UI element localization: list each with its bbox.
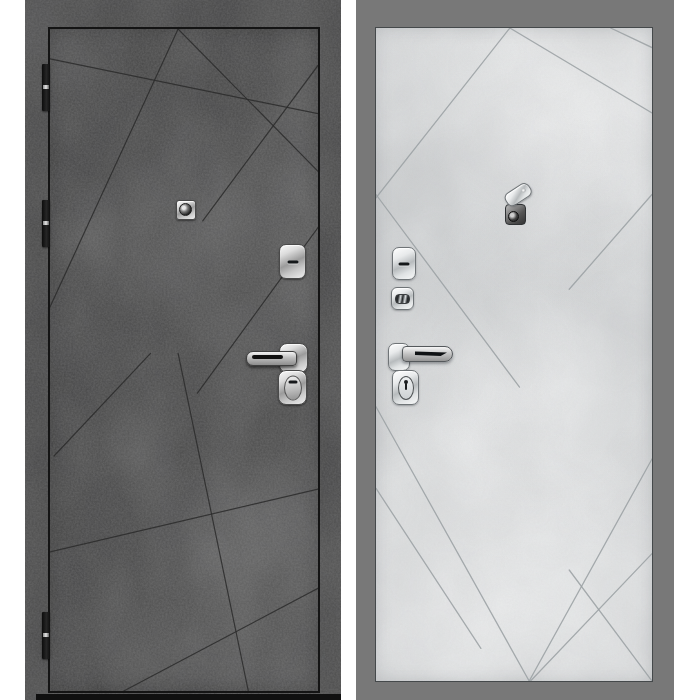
peephole-lens: [508, 211, 519, 222]
keyhole-slit: [405, 383, 407, 390]
panel-interior: [356, 0, 674, 700]
lever-grip-stripe: [415, 351, 447, 356]
door-handle-lever: [246, 351, 297, 366]
key-slot: [288, 380, 297, 383]
peephole-icon: [176, 200, 196, 220]
panel-exterior: [25, 0, 341, 700]
cylinder-oval: [398, 376, 414, 400]
upper-lock-cover: [392, 247, 416, 280]
cylinder-oval: [284, 375, 302, 400]
door-threshold: [36, 694, 341, 700]
thumbturn-knob: [391, 287, 414, 310]
upper-lock-cover: [279, 244, 306, 279]
door-handle-lever: [402, 346, 453, 362]
door-product-photo: [0, 0, 700, 700]
exterior-door-leaf: [48, 27, 320, 693]
lock-slot: [287, 260, 298, 263]
peephole-lens: [179, 203, 192, 216]
key-cylinder-cover: [278, 370, 307, 405]
peephole-icon: [505, 204, 526, 225]
interior-door-leaf: [375, 27, 653, 682]
thumbturn-wing: [395, 294, 410, 304]
lever-grip-stripe: [252, 355, 283, 359]
hinge-bottom: [42, 612, 50, 659]
lock-slot: [399, 262, 410, 265]
hinge-middle: [42, 200, 50, 247]
hinge-top: [42, 64, 50, 111]
key-cylinder-cover: [392, 370, 419, 405]
